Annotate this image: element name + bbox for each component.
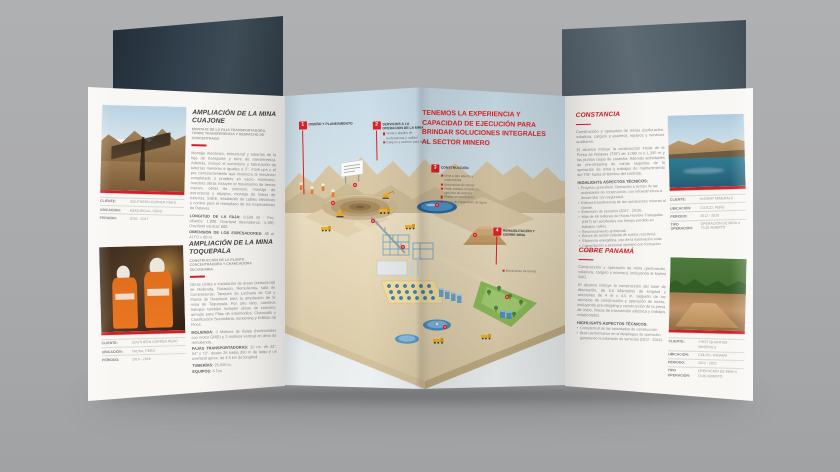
project-stat: EQUIPOS: 4 Ton. [192,367,277,374]
photo-constancia-mine [668,114,746,191]
project-section-cobre-panama: COBRE PANAMÁ Construcción y operación de… [563,241,755,404]
marker-rehabilitacion-cierre: 4REHABILITACIÓN Y CIERRE MINA Movimiento… [493,227,544,273]
detail-label: CLIENTE: [102,341,132,346]
stat-value: 25,000 m. [214,362,231,367]
details-table: CLIENTE:FIRST QUANTUM MINERALS UBICACIÓN… [668,337,745,380]
accent-dash [190,276,205,278]
highlight-item: •Más de 45 millones de Horas Hombre Trab… [578,213,666,230]
detail-label: PERIODO: [102,357,132,362]
marker-number-badge: 2 [373,121,381,129]
project-body: Obras civiles e instalación de áreas (es… [190,280,276,327]
project-subtitle: MONTAJE DE LA FAJA TRANSPORTADORA, TORRE… [192,127,277,143]
accent-dash [578,259,593,261]
detail-row: TIPO OPERACIÓN:OPERACIÓN DE MINA A TAJO … [668,366,744,380]
brochure-panel-projects-world: CONSTANCIA Construcción y operación de m… [565,88,753,401]
marker-servicios-operacion: 2SERVICIOS A LA OPERACIÓN DE LA MINA Ven… [373,120,429,144]
detail-label: TIPO OPERACIÓN: [671,222,701,232]
project-stat: MOLIENDA: 3 Molinos de Bolas (horizontal… [191,328,276,345]
detail-value: 2016 - 2019 [132,357,151,362]
marker-construccion: 3CONSTRUCCIÓN Mina a tajo abierto y subt… [431,164,488,204]
brochure-panel-illustration: TENEMOS LA EXPERIENCIA Y CAPACIDAD DE EJ… [285,85,565,389]
project-paragraph: Construcción y operación de minas (perfo… [576,127,664,144]
marker-title: CONSTRUCCIÓN [441,165,469,170]
project-stat: LONGITUD DE LA FAJA: 8,530 ml · Pre-cili… [189,213,274,230]
marker-title: SERVICIOS A LA OPERACIÓN DE LA MINA [382,120,429,130]
detail-value: FIRST QUANTUM MINERALS [698,340,744,350]
marker-title: REHABILITACIÓN Y CIERRE MINA [503,228,544,238]
detail-row: PERIODO:2016 - 2019 [102,353,186,363]
photo-cobre-panama-site [669,257,747,334]
marker-title: DISEÑO Y PLANEAMIENTO [308,120,352,126]
detail-label: PERIODO: [100,216,130,221]
project-text-cobre-panama: COBRE PANAMÁ Construcción y operación de… [577,247,667,343]
project-paragraph: El alcance incluye la construcción inici… [577,145,666,177]
photo-toquepala-workers [99,245,185,335]
worker-figure [143,257,173,327]
detail-label: PERIODO: [670,214,700,219]
marker-number-badge: 4 [493,227,501,235]
detail-value: MOQUEGUA, PERÚ [130,208,163,213]
marker-number-badge: 1 [299,121,307,129]
project-title: CONSTANCIA [576,110,664,120]
detail-value: 2012 - 2022 [698,361,717,366]
project-text-constancia: CONSTANCIA Construcción y operación de m… [576,110,668,254]
accent-dash [576,123,591,125]
stat-label: EQUIPOS: [192,369,211,374]
detail-value: 2016 - 2017 [130,216,149,221]
project-section-toquepala: CLIENTE:SOUTHERN COPPER PERÚ UBICACIÓN:T… [86,236,287,403]
worker-figure [111,265,138,329]
detail-value: HUDBAY MINERALS [700,196,733,201]
detail-label: UBICACIÓN: [668,352,698,357]
details-table: CLIENTE:HUDBAY MINERALS UBICACIÓN:CUSCO,… [670,194,747,233]
photo-sky [102,105,187,141]
detail-value: SOUTHERN COPPER PERÚ [130,200,176,206]
detail-label: PERIODO: [668,360,698,365]
detail-value: COLÓN, PANAMÁ [698,353,727,358]
detail-value: 2012 - 2016 [700,213,719,218]
detail-label: CLIENTE: [100,199,130,204]
project-paragraph: El alcance incluye la construcción del t… [577,282,666,319]
project-text-toquepala: AMPLIACIÓN DE LA MINA TOQUEPALA CONSTRUC… [189,239,278,376]
brochure-panel-projects-peru: CLIENTE:SOUTHERN COPPER PERÚ UBICACIÓN:M… [88,87,285,401]
stat-label: TUBERÍAS: [192,362,213,368]
project-section-constancia: CONSTANCIA Construcción y operación de m… [563,86,755,246]
project-title: AMPLIACIÓN DE LA MINA TOQUEPALA [189,239,274,256]
detail-value: SOUTHERN COPPER PERÚ [132,340,178,346]
accent-dash [191,144,206,146]
highlight-item: •Buen performance en el despliegue de op… [577,331,665,343]
detail-value: OPERACIÓN DE MINA A TAJO ABIERTO [698,369,744,379]
project-text-cuajone: AMPLIACIÓN DE LA MINA CUAJONE MONTAJE DE… [189,109,277,243]
marker-item: Movimiento de tierras [502,269,543,274]
marker-number-badge: 3 [431,164,439,172]
detail-row: PERIODO:2016 - 2017 [100,213,184,223]
detail-label: UBICACIÓN: [100,207,130,212]
mockup-scene: { "colors":{"accent_red":"#cf2127","head… [0,0,840,472]
detail-label: CLIENTE: [670,197,700,202]
project-paragraph: Construcción y operación de mina (perfor… [578,264,666,281]
detail-label: UBICACIÓN: [670,206,700,211]
details-table: CLIENTE:SOUTHERN COPPER PERÚ UBICACIÓN:M… [100,197,185,224]
brochure-back-panel-left [113,16,283,96]
detail-label: CLIENTE: [668,340,698,345]
marker-leader-line [496,236,497,264]
detail-value: CUSCO, PERÚ [700,205,724,210]
project-title: AMPLIACIÓN DE LA MINA CUAJONE [192,109,277,126]
details-table: CLIENTE:SOUTHERN COPPER PERÚ UBICACIÓN:T… [101,337,186,364]
project-stat: FAJAS TRANSPORTADORAS: 10 un. de 42", 54… [192,344,277,361]
detail-label: UBICACIÓN: [102,349,132,354]
photo-cuajone-mine [100,105,186,195]
project-subtitle: CONSTRUCCIÓN DE LA PLANTA CONCENTRADORA … [189,256,274,272]
marker-diseno-planeamiento: 1DISEÑO Y PLANEAMIENTO [299,120,355,129]
brochure-back-panel-right [562,20,746,98]
detail-row: TIPO OPERACIÓN:OPERACIÓN DE MINA A TAJO … [670,218,746,233]
headline: TENEMOS LA EXPERIENCIA Y CAPACIDAD DE EJ… [422,109,554,150]
project-title: COBRE PANAMÁ [579,247,667,257]
stat-value: 4 Ton. [212,369,223,374]
detail-label: TIPO OPERACIÓN: [668,369,698,379]
project-body: Montaje mecánico, estructural y tuberías… [190,150,276,212]
project-section-cuajone: CLIENTE:SOUTHERN COPPER PERÚ UBICACIÓN:M… [86,85,287,242]
detail-value: OPERACIÓN DE MINA A TAJO ABIERTO [700,221,746,231]
detail-value: TACNA, PERÚ [132,348,155,353]
